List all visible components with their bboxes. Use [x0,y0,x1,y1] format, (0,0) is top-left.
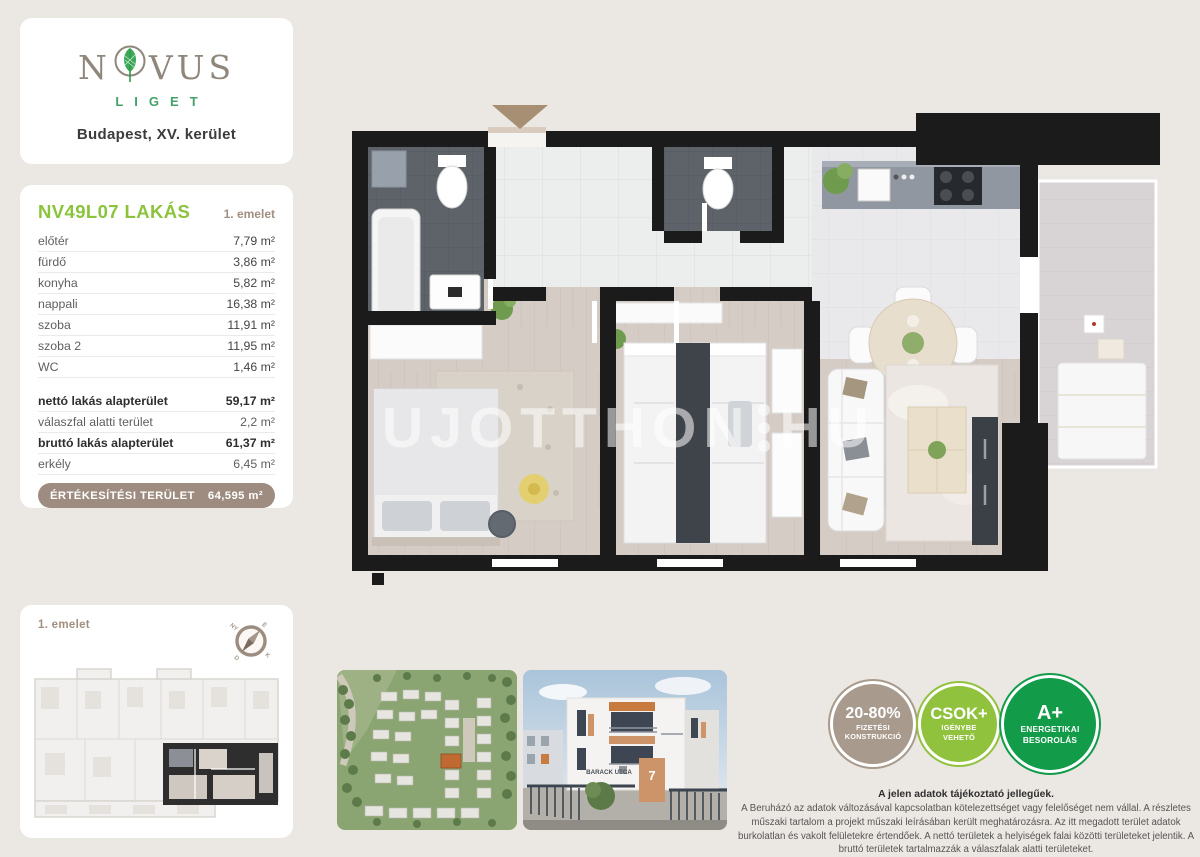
leaf-o-icon [113,44,147,84]
brand-text-left: N [78,51,111,84]
summary-label: bruttó lakás alapterület [38,433,212,454]
siteplan-aerial-photo [337,670,517,830]
pillow [728,401,752,447]
highlighted-unit [163,743,278,805]
table-row: erkély6,45 m² [38,454,275,475]
unit-id-title: NV49L07 LAKÁS [38,201,190,223]
bed-runner [676,343,710,543]
room-area-table: előtér7,79 m² fürdő3,86 m² konyha5,82 m²… [38,231,275,378]
room-label: előtér [38,231,149,252]
disclaimer-body: A Beruházó az adatok változásával kapcso… [735,802,1197,857]
energy-rating-badge: A+ ENERGETIKAI BESOROLÁS [999,673,1101,775]
summary-label: válaszfal alatti terület [38,412,212,433]
table-row: előtér7,79 m² [38,231,275,252]
table-row: konyha5,82 m² [38,273,275,294]
wardrobe [772,433,802,517]
pillow [382,501,432,531]
kitchen-counter [822,161,1020,209]
badge-value: A+ [1037,703,1063,724]
badge-value: 20-80% [845,706,900,723]
summary-area: 2,2 m² [212,412,275,433]
table-row: fürdő3,86 m² [38,252,275,273]
floor-overview-card: 1. emelet É K D NY [20,605,293,838]
summary-label: nettó lakás alapterület [38,391,212,412]
sales-area-value: 64,595 m² [208,490,263,502]
room-area: 7,79 m² [149,231,275,252]
logo-card: N VUS LIGET Budapest, XV. kerület [20,18,293,164]
cooktop [934,167,982,205]
project-location: Budapest, XV. kerület [20,126,293,143]
tv-stand [972,417,998,545]
table-row: szoba 211,95 m² [38,336,275,357]
table-row: nettó lakás alapterület59,17 m² [38,391,275,412]
wardrobe [772,349,802,413]
badge-value: CSOK+ [930,706,987,723]
unit-data-card: NV49L07 LAKÁS 1. emelet előtér7,79 m² fü… [20,185,293,508]
wardrobe [370,325,482,359]
disclaimer: A jelen adatok tájékoztató jellegűek. A … [735,789,1197,857]
svg-text:É: É [260,621,268,630]
street-sign: BARACK UTCA [586,769,632,776]
toilet-tank [438,155,466,167]
sales-area-label: ÉRTÉKESÍTÉSI TERÜLET [50,490,195,502]
table-row: válaszfal alatti terület2,2 m² [38,412,275,433]
brand-logo: N VUS [20,44,293,84]
building-render-photo: 7 BARACK UTCA [523,670,727,830]
room-label: fürdő [38,252,149,273]
summary-area: 59,17 m² [212,391,275,412]
pillow [440,501,490,531]
living-room-furniture [828,365,998,545]
brand-text-right: VUS [149,51,235,84]
kitchen-sink [858,169,890,201]
brand-subtitle: LIGET [31,94,293,109]
wc-fixtures [703,157,733,209]
toilet [437,166,467,208]
disclaimer-title: A jelen adatok tájékoztató jellegűek. [735,789,1197,800]
room-label: szoba 2 [38,336,149,357]
summary-area: 6,45 m² [212,454,275,475]
balcony [1038,181,1156,467]
highlighted-building [441,754,461,768]
toilet [703,169,733,209]
entry-arrow-icon [492,105,548,129]
room-label: szoba [38,315,149,336]
sales-area-badge: ÉRTÉKESÍTÉSI TERÜLET 64,595 m² [38,483,275,508]
csok-badge: CSOK+ IGÉNYBE VEHETŐ [916,681,1002,767]
room-area: 16,38 m² [149,294,275,315]
table-row: bruttó lakás alapterület61,37 m² [38,433,275,454]
room-area: 3,86 m² [149,252,275,273]
shelf [604,303,722,323]
pouf [489,511,515,537]
apartment-floorplan: UJOTTHON HU [352,103,1162,588]
room-area: 1,46 m² [149,357,275,378]
house-number: 7 [648,768,655,783]
table-row: WC1,46 m² [38,357,275,378]
room-label: WC [38,357,149,378]
room-label: konyha [38,273,149,294]
summary-area-table: nettó lakás alapterület59,17 m² válaszfa… [38,391,275,475]
table-row: szoba11,91 m² [38,315,275,336]
summary-area: 61,37 m² [212,433,275,454]
payment-construction-badge: 20-80% FIZETÉSI KONSTRUKCIÓ [828,679,918,769]
washing-machine [372,151,406,187]
svg-text:NY: NY [228,623,238,633]
room-label: nappali [38,294,149,315]
room-area: 5,82 m² [149,273,275,294]
table-row: nappali16,38 m² [38,294,275,315]
room-area: 11,91 m² [149,315,275,336]
room-area: 11,95 m² [149,336,275,357]
floor-overview-miniplan [29,657,284,832]
overview-floor-label: 1. emelet [38,619,90,631]
summary-label: erkély [38,454,212,475]
unit-floor-label: 1. emelet [224,207,275,221]
entry-marker [488,105,548,147]
